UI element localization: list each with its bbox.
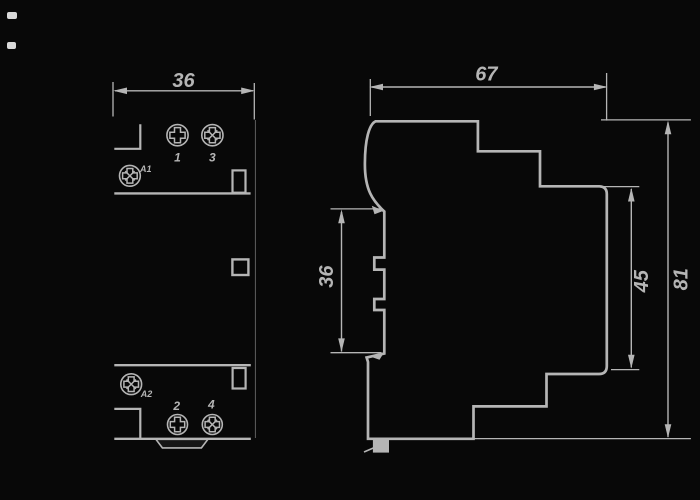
svg-text:36: 36 xyxy=(316,265,338,288)
svg-text:A2: A2 xyxy=(140,389,153,399)
svg-text:3: 3 xyxy=(209,150,216,164)
svg-text:4: 4 xyxy=(207,397,215,411)
svg-text:36: 36 xyxy=(172,70,195,92)
svg-text:A1: A1 xyxy=(139,164,152,174)
svg-text:1: 1 xyxy=(174,150,181,164)
svg-text:45: 45 xyxy=(631,269,653,293)
svg-text:2: 2 xyxy=(172,399,180,413)
svg-text:67: 67 xyxy=(475,64,498,86)
svg-text:81: 81 xyxy=(670,268,692,290)
